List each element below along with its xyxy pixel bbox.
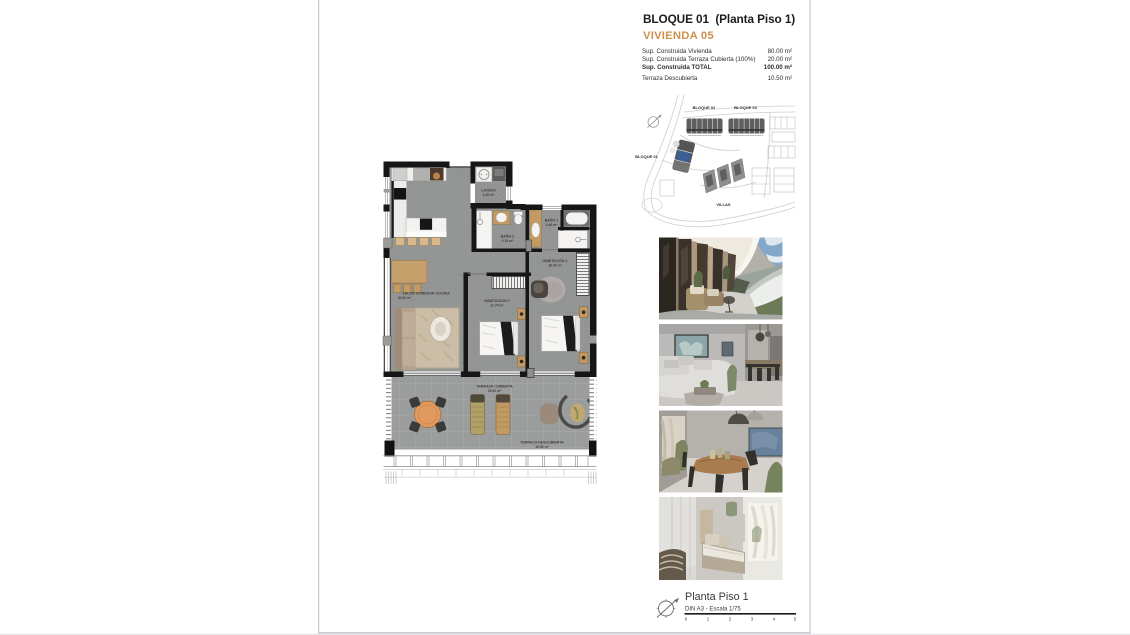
svg-text:0: 0 xyxy=(685,617,688,622)
svg-text:HABITACIÓN 2: HABITACIÓN 2 xyxy=(484,298,509,303)
svg-text:BAÑO 1: BAÑO 1 xyxy=(545,218,559,223)
svg-text:1: 1 xyxy=(707,617,710,622)
svg-text:4.40 m²: 4.40 m² xyxy=(546,223,559,227)
svg-text:SALÓN COMEDOR COCINA: SALÓN COMEDOR COCINA xyxy=(402,291,450,296)
svg-text:BAÑO 2: BAÑO 2 xyxy=(501,234,515,239)
svg-text:3: 3 xyxy=(751,617,754,622)
svg-text:16.00 m²: 16.00 m² xyxy=(548,264,562,268)
svg-text:11.70 m²: 11.70 m² xyxy=(490,304,504,308)
svg-text:5: 5 xyxy=(794,617,797,622)
svg-text:HABITACIÓN 1: HABITACIÓN 1 xyxy=(542,258,567,263)
svg-text:TERRAZA DESCUBIERTA: TERRAZA DESCUBIERTA xyxy=(520,441,564,445)
svg-text:BLOQUE 01: BLOQUE 01 xyxy=(635,154,658,159)
svg-text:33.00 m²: 33.00 m² xyxy=(398,296,412,300)
svg-text:20.00 m²: 20.00 m² xyxy=(488,389,502,393)
svg-text:TERRAZA CUBIERTA: TERRAZA CUBIERTA xyxy=(476,385,513,389)
svg-text:DIN A3 - Escala 1/75: DIN A3 - Escala 1/75 xyxy=(685,607,741,613)
svg-text:BLOQUE 02: BLOQUE 02 xyxy=(693,105,716,110)
svg-text:2.20 m²: 2.20 m² xyxy=(483,193,496,197)
svg-text:4: 4 xyxy=(773,617,776,622)
svg-text:VILLAS: VILLAS xyxy=(716,202,731,207)
svg-text:BLOQUE 03: BLOQUE 03 xyxy=(734,105,757,110)
svg-text:4.15 m²: 4.15 m² xyxy=(502,239,515,243)
svg-text:2: 2 xyxy=(729,617,732,622)
svg-text:Planta Piso 1: Planta Piso 1 xyxy=(685,591,749,603)
svg-text:LAVADO: LAVADO xyxy=(481,189,496,193)
svg-text:10.50 m²: 10.50 m² xyxy=(535,445,549,449)
